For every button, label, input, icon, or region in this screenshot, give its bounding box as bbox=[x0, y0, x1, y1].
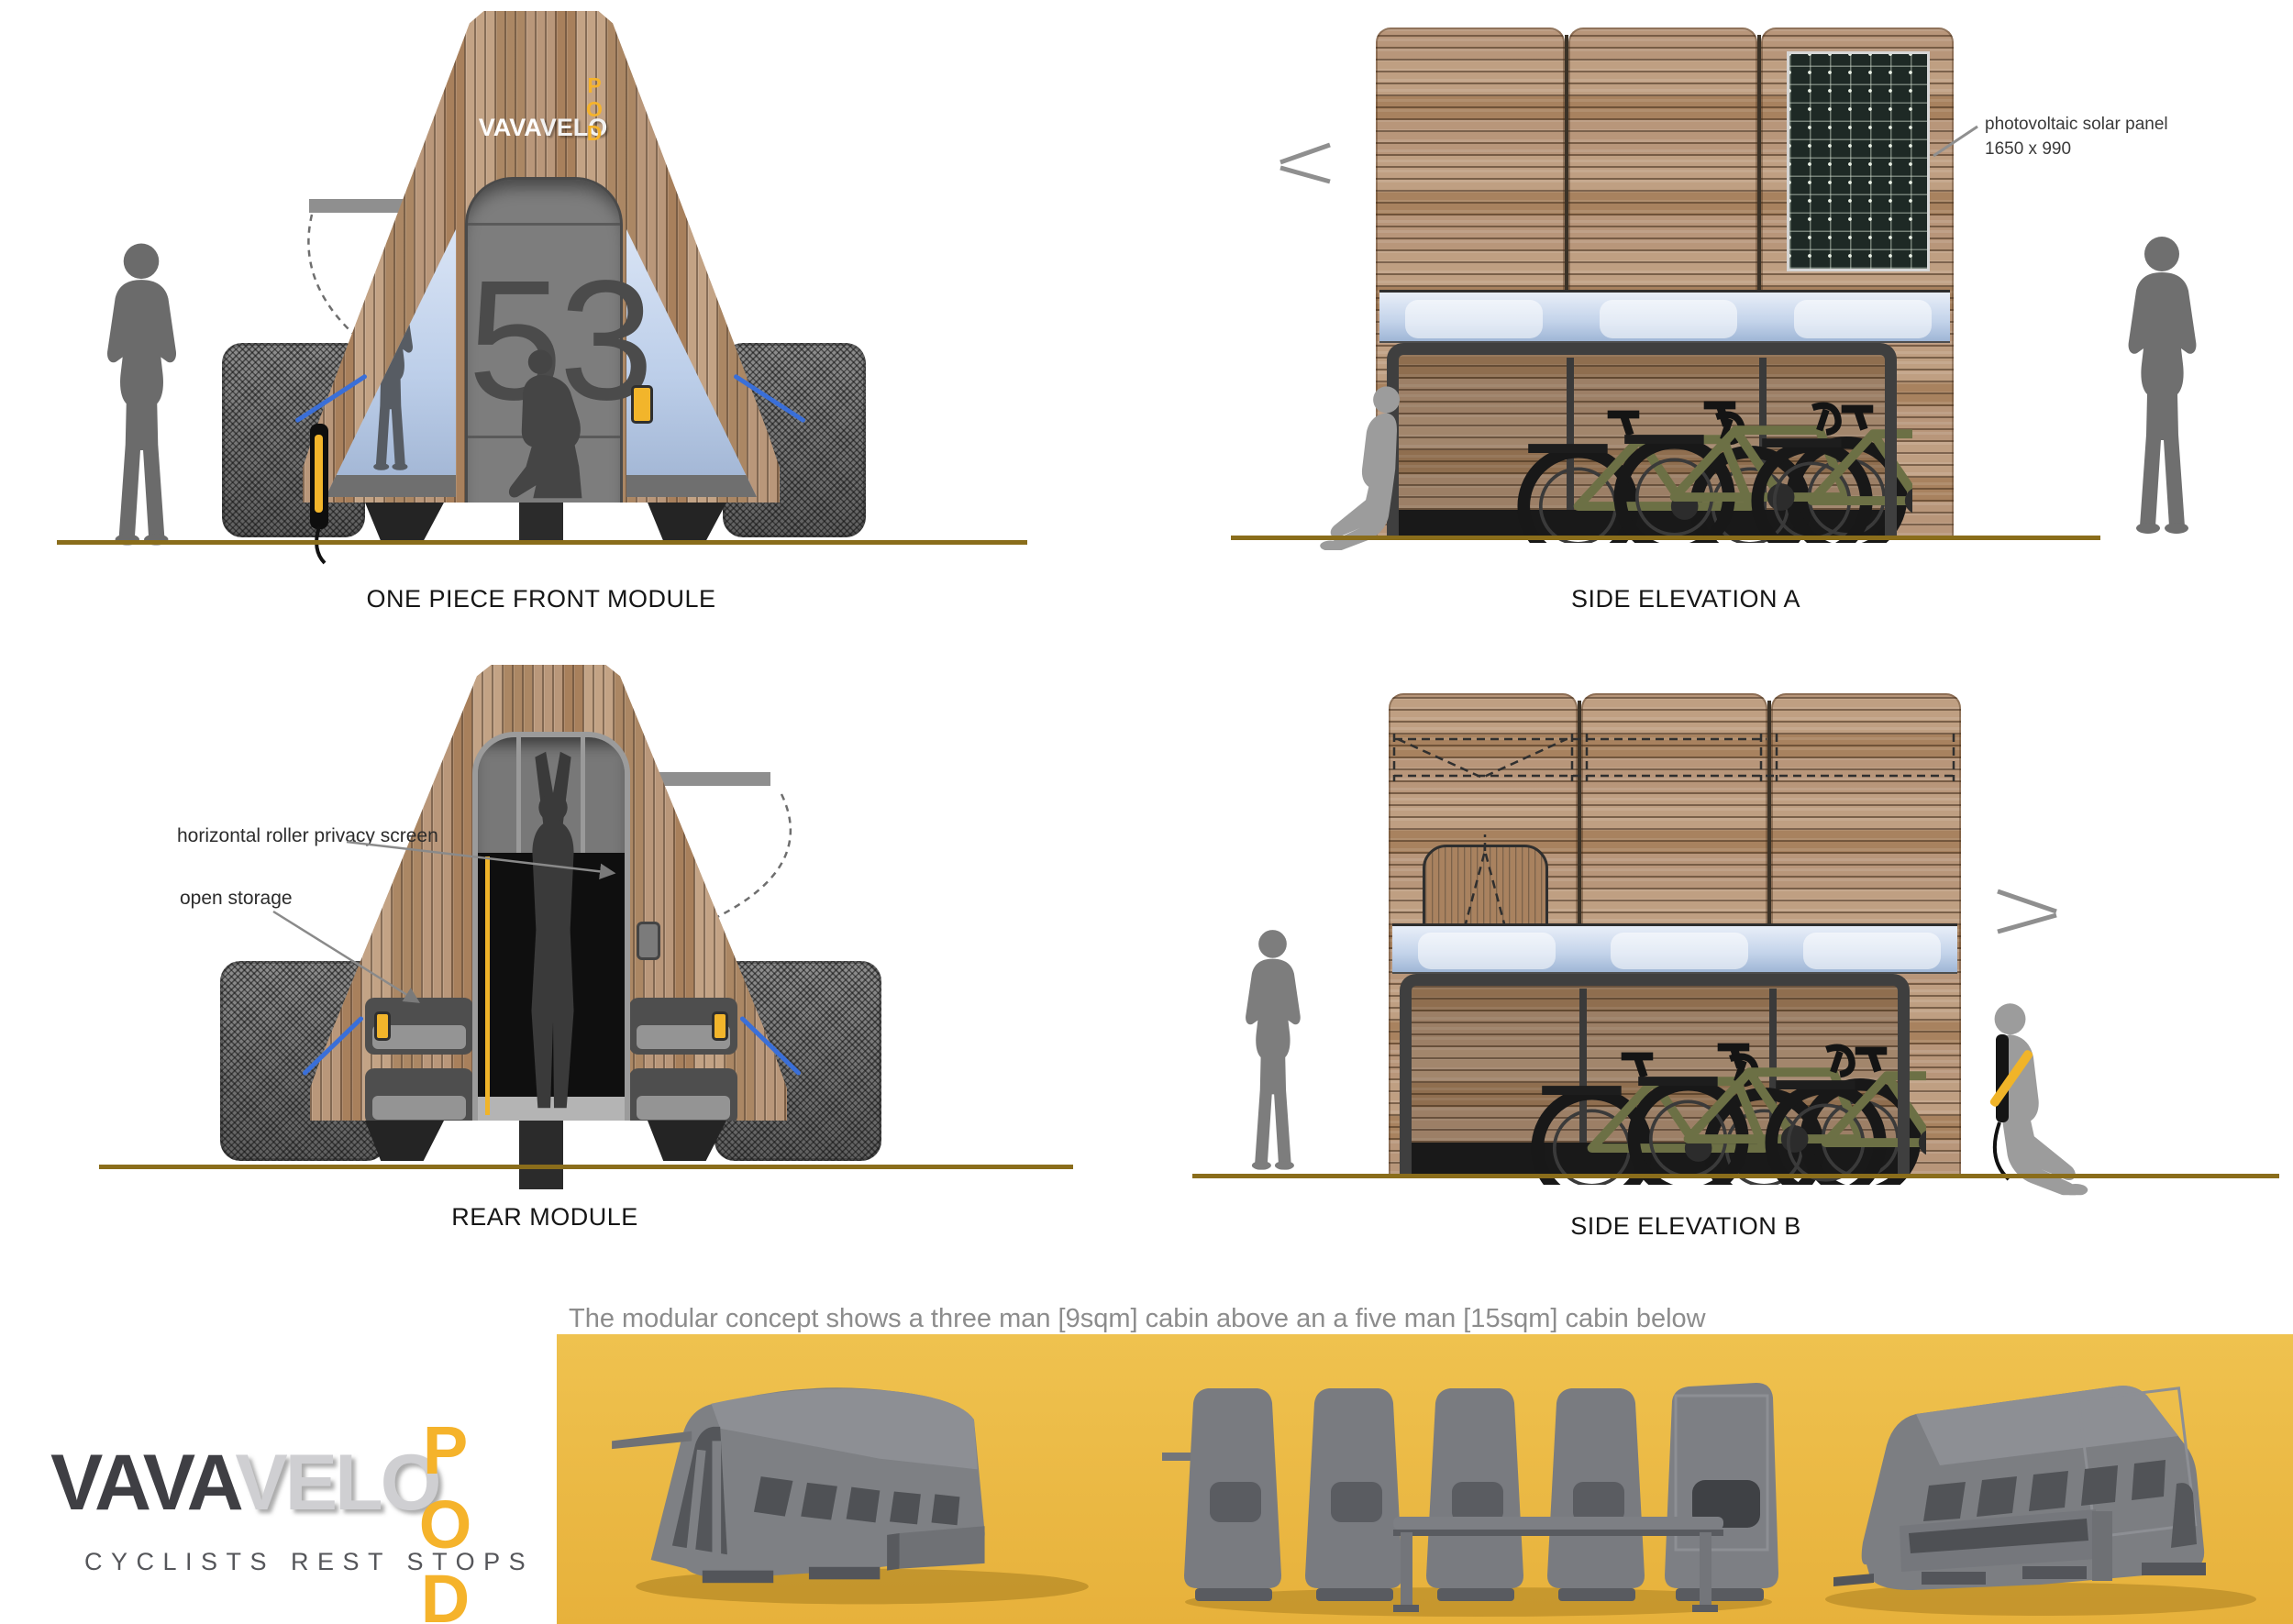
door-handle bbox=[631, 385, 653, 424]
ground-line bbox=[1231, 536, 2100, 540]
window-reflection bbox=[1803, 933, 1941, 969]
ground-line bbox=[57, 540, 1027, 545]
person-silhouette bbox=[81, 237, 202, 547]
window-reflection bbox=[1600, 300, 1737, 338]
person-silhouette bbox=[1286, 381, 1423, 550]
solar-annotation-line1: photovoltaic solar panel bbox=[1985, 112, 2168, 137]
door-seam bbox=[468, 223, 620, 226]
render-modular-frames bbox=[1158, 1344, 1800, 1619]
storage-compartment bbox=[365, 1068, 473, 1125]
pod-center-post bbox=[519, 1121, 563, 1189]
storage-compartment bbox=[629, 1068, 737, 1125]
storage-shelf bbox=[372, 1096, 466, 1120]
shelter-frame bbox=[1400, 974, 1910, 1174]
awning-bracket bbox=[1275, 138, 1383, 188]
pod-logo-vava: VAVA bbox=[479, 114, 540, 141]
door-person-silhouette bbox=[475, 345, 613, 503]
brand-logo-vava: VAVA bbox=[50, 1439, 235, 1527]
rear-module-label: REAR MODULE bbox=[451, 1203, 638, 1232]
concept-caption: The modular concept shows a three man [9… bbox=[569, 1304, 1706, 1334]
side-elevation-a-label: SIDE ELEVATION A bbox=[1571, 585, 1800, 613]
rear-module-view: horizontal roller privacy screen open st… bbox=[0, 642, 1119, 1265]
render-rear-quarter bbox=[1811, 1346, 2288, 1621]
pod-foot-right bbox=[648, 1121, 726, 1161]
solar-annotation: photovoltaic solar panel 1650 x 990 bbox=[1985, 112, 2168, 161]
person-silhouette bbox=[1224, 917, 1321, 1178]
brand-logo: VAVAVELO bbox=[50, 1438, 439, 1529]
side-elevation-b-view: SIDE ELEVATION B bbox=[1183, 642, 2293, 1284]
solar-leader-line bbox=[1922, 115, 1995, 170]
pod-logo: VAVAVELO bbox=[451, 114, 635, 142]
front-module-view: VAVAVELO POD 53 ONE PIECE FRONT MODULE bbox=[0, 0, 1119, 624]
brand-logo-pod-vertical: POD bbox=[411, 1412, 479, 1624]
person-silhouette bbox=[2102, 226, 2221, 539]
pod-center-post bbox=[519, 503, 563, 543]
window-reflection bbox=[1418, 933, 1556, 969]
window-reflection bbox=[1611, 933, 1748, 969]
p​ump-cable bbox=[303, 525, 339, 570]
shelter-frame bbox=[1387, 343, 1897, 537]
render-front-quarter bbox=[587, 1341, 1137, 1616]
bike-pump-stripe bbox=[315, 435, 323, 513]
design-board: VAVAVELO POD 53 ONE PIECE FRONT MODULE bbox=[0, 0, 2293, 1624]
pod-logo-pod-vertical: POD bbox=[583, 73, 604, 145]
window-reflection bbox=[1405, 300, 1543, 338]
front-pod-door: 53 bbox=[465, 177, 623, 503]
ground-line bbox=[99, 1165, 1073, 1169]
ground-line bbox=[1192, 1174, 2279, 1178]
window-band bbox=[1392, 923, 1957, 974]
side-elevation-b-label: SIDE ELEVATION B bbox=[1570, 1212, 1801, 1241]
solar-annotation-line2: 1650 x 990 bbox=[1985, 137, 2168, 161]
storage-shelf bbox=[637, 1096, 730, 1120]
awning-bracket bbox=[1996, 885, 2065, 940]
window-floor bbox=[626, 475, 757, 497]
pod-foot-right bbox=[648, 503, 726, 541]
pump-cable bbox=[1981, 1119, 2036, 1192]
window-band bbox=[1379, 290, 1950, 343]
window-reflection bbox=[1794, 300, 1932, 338]
annotation-leader-lines bbox=[138, 807, 780, 1036]
solar-panel bbox=[1787, 51, 1930, 271]
pod-foot-left bbox=[365, 503, 444, 541]
front-module-label: ONE PIECE FRONT MODULE bbox=[366, 585, 715, 613]
window-floor bbox=[326, 475, 456, 497]
side-elevation-a-view: photovoltaic solar panel 1650 x 990 SIDE… bbox=[1183, 0, 2293, 624]
